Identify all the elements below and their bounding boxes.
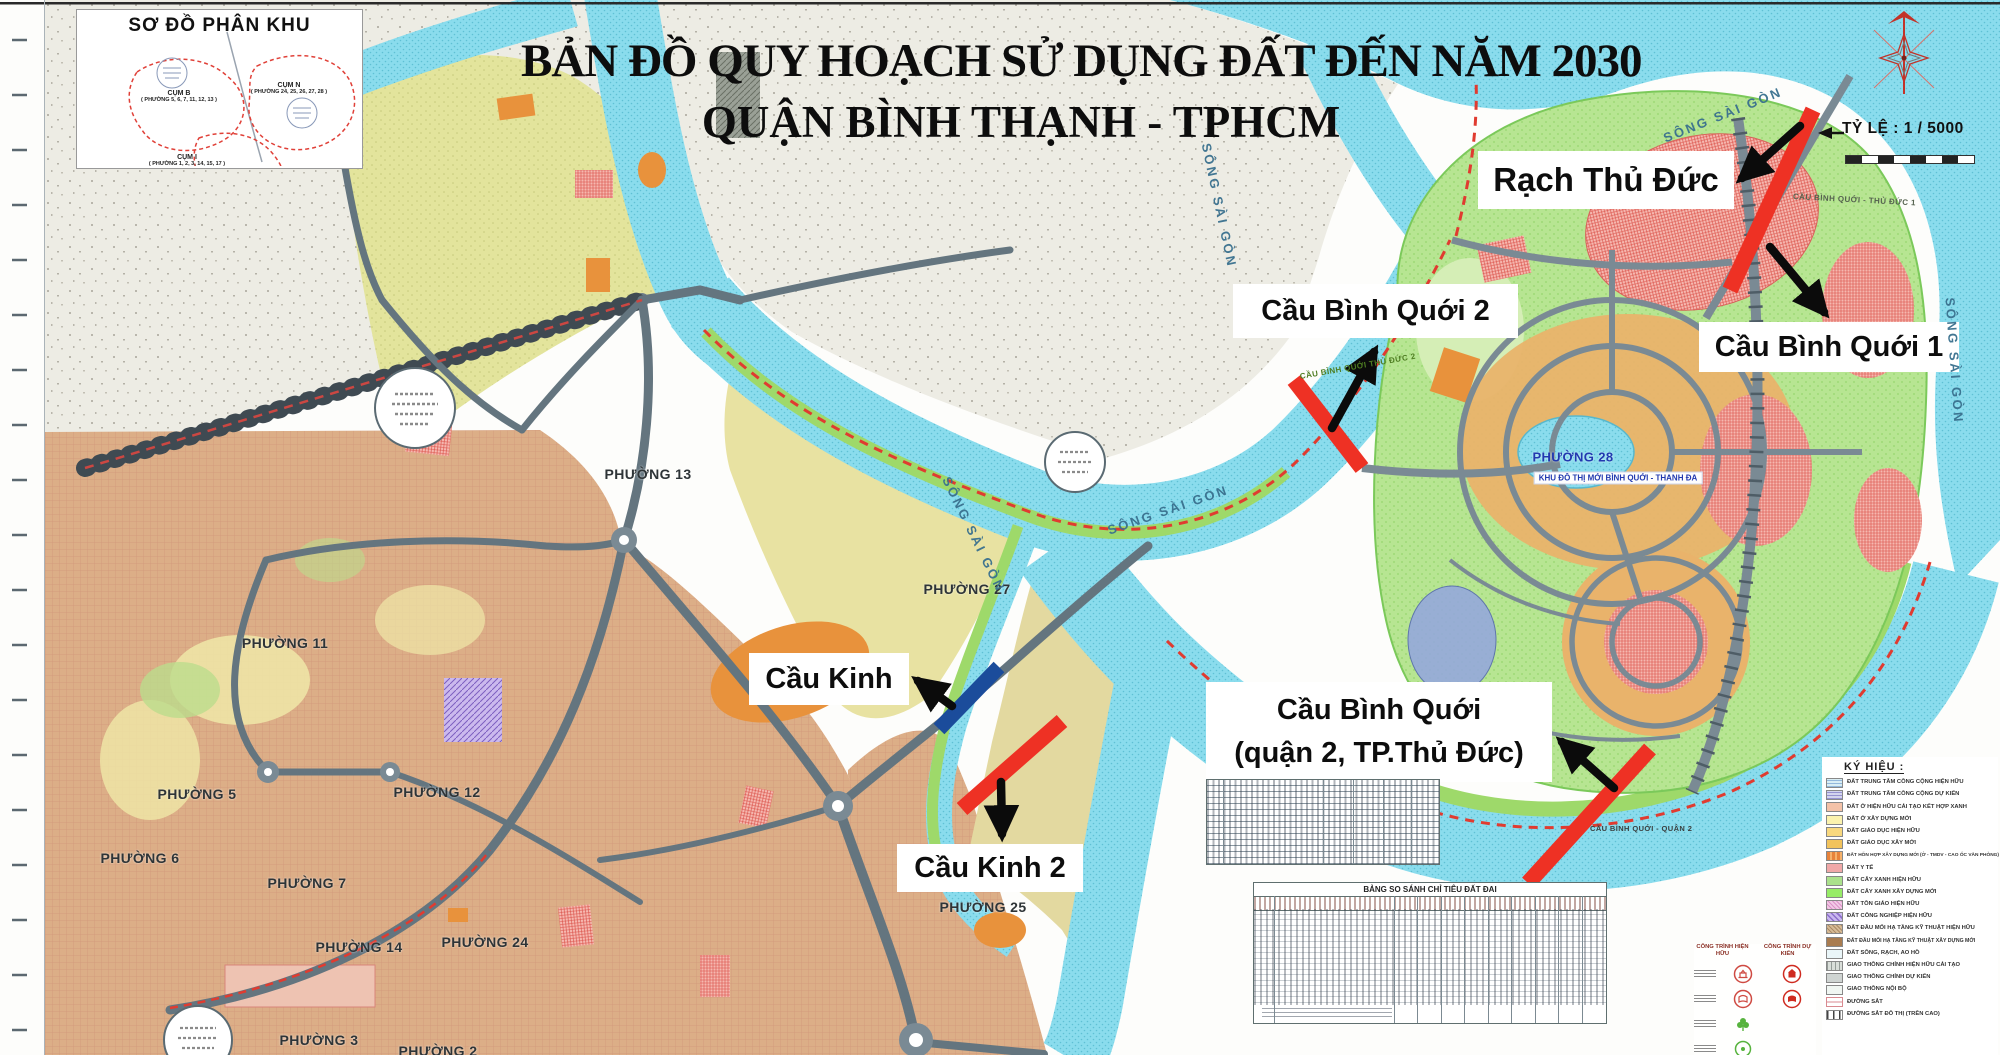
legend-swatch bbox=[1826, 949, 1843, 959]
legend-label: ĐƯỜNG SẮT ĐÔ THỊ (TRÊN CAO) bbox=[1847, 1012, 1940, 1018]
inset-zoning-diagram: SƠ ĐỒ PHÂN KHU CỤM B ( PHƯỜNG 5, 6, 7, 1… bbox=[76, 9, 363, 169]
callout-cau-binh-quoi-quan2: Cầu Bình Quới (quận 2, TP.Thủ Đức) bbox=[1206, 682, 1552, 782]
legend-swatch bbox=[1826, 924, 1843, 934]
inset-cluster-i: CỤM I ( PHƯỜNG 1, 2, 3, 14, 15, 17 ) bbox=[149, 154, 225, 167]
ward-label-phuong-13: PHƯỜNG 13 bbox=[604, 466, 691, 482]
legend-structure-row-label bbox=[1694, 1045, 1716, 1054]
existing-park-icon bbox=[1733, 1014, 1753, 1034]
legend-structure-row-label bbox=[1694, 995, 1716, 1004]
grid-ticks bbox=[12, 40, 27, 1030]
callout-cau-kinh: Cầu Kinh bbox=[749, 653, 909, 705]
legend-swatch bbox=[1826, 937, 1843, 947]
legend-swatch bbox=[1826, 790, 1843, 800]
comparison-table-notes bbox=[1262, 1008, 1392, 1020]
legend-label: ĐẤT CÂY XANH HIỆN HỮU bbox=[1847, 878, 1921, 884]
legend-structures: CÔNG TRÌNH HIỆN HỮU CÔNG TRÌNH DỰ KIẾN bbox=[1694, 944, 1816, 1055]
inset-cluster-n: CỤM N ( PHƯỜNG 24, 25, 26, 27, 28 ) bbox=[251, 82, 327, 95]
legend-structure-row-label bbox=[1694, 970, 1716, 979]
map-title-line1: BẢN ĐỒ QUY HOẠCH SỬ DỤNG ĐẤT ĐẾN NĂM 203… bbox=[521, 34, 1521, 88]
map-title: BẢN ĐỒ QUY HOẠCH SỬ DỤNG ĐẤT ĐẾN NĂM 203… bbox=[521, 34, 1521, 148]
legend-label: ĐẤT GIÁO DỤC XÂY MỚI bbox=[1847, 841, 1916, 847]
label-khu-do-thi-binh-quoi-thanh-da: KHU ĐÔ THỊ MỚI BÌNH QUỚI - THANH ĐA bbox=[1534, 472, 1703, 485]
legend-swatch bbox=[1826, 985, 1843, 995]
ward-label-phuong-14: PHƯỜNG 14 bbox=[315, 939, 402, 955]
ward-label-phuong-5: PHƯỜNG 5 bbox=[158, 786, 237, 802]
legend-label: ĐẤT ĐẦU MỐI HẠ TẦNG KỸ THUẬT XÂY DỰNG MỚ… bbox=[1847, 939, 1975, 944]
inset-cluster-b: CỤM B ( PHƯỜNG 5, 6, 7, 11, 12, 13 ) bbox=[141, 90, 217, 103]
legend-swatch bbox=[1826, 839, 1843, 849]
ward-label-phuong-28: PHƯỜNG 28 bbox=[1532, 450, 1613, 465]
comparison-table-body bbox=[1254, 909, 1606, 1005]
legend-swatch bbox=[1826, 912, 1843, 922]
ward-label-phuong-11: PHƯỜNG 11 bbox=[242, 635, 328, 651]
legend-swatch bbox=[1826, 815, 1843, 825]
scale-bar bbox=[1845, 155, 1975, 164]
legend-swatch bbox=[1826, 961, 1843, 971]
legend-swatch bbox=[1826, 900, 1843, 910]
legend-structures-planned: CÔNG TRÌNH DỰ KIẾN bbox=[1759, 944, 1816, 958]
legend-label: ĐẤT GIÁO DỤC HIỆN HỮU bbox=[1847, 829, 1920, 835]
legend-label: ĐẤT Y TẾ bbox=[1847, 866, 1873, 872]
callout-cau-binh-quoi-1: Cầu Bình Quới 1 bbox=[1699, 322, 1959, 372]
legend-label: ĐƯỜNG SẮT bbox=[1847, 1000, 1883, 1006]
callout-cbq-q2-line1: Cầu Bình Quới bbox=[1277, 689, 1481, 733]
legend-swatch bbox=[1826, 851, 1843, 861]
legend-structures-existing: CÔNG TRÌNH HIỆN HỮU bbox=[1694, 944, 1751, 958]
legend-label: ĐẤT HỖN HỢP XÂY DỰNG MỚI (Ở - TMDV - CAO… bbox=[1847, 854, 1999, 859]
legend-label: ĐẤT Ở XÂY DỰNG MỚI bbox=[1847, 817, 1911, 823]
legend-title: KÝ HIỆU : bbox=[1844, 761, 1904, 774]
legend-label: ĐẤT TÔN GIÁO HIỆN HỮU bbox=[1847, 902, 1919, 908]
legend-swatch bbox=[1826, 973, 1843, 983]
inset-title: SƠ ĐỒ PHÂN KHU bbox=[77, 15, 362, 37]
legend-swatch bbox=[1826, 778, 1843, 788]
callout-cau-kinh-2: Cầu Kinh 2 bbox=[897, 844, 1083, 892]
legend-label: ĐẤT CÂY XANH XÂY DỰNG MỚI bbox=[1847, 890, 1936, 896]
legend-panel: KÝ HIỆU : ĐẤT TRUNG TÂM CÔNG CỘNG HIỆN H… bbox=[1822, 757, 1998, 1055]
callout-cau-binh-quoi-2: Cầu Bình Quới 2 bbox=[1233, 284, 1518, 338]
map-title-line2: QUẬN BÌNH THẠNH - TPHCM bbox=[521, 96, 1521, 148]
map-text-cau-binh-quoi-quan-2: CẦU BÌNH QUỚI - QUẬN 2 bbox=[1590, 824, 1692, 833]
callout-cbq-q2-line2: (quận 2, TP.Thủ Đức) bbox=[1234, 732, 1524, 776]
legend-swatch bbox=[1826, 997, 1843, 1007]
legend-swatch bbox=[1826, 802, 1843, 812]
existing-civic-building-icon bbox=[1733, 964, 1753, 984]
legend-label: ĐẤT TRUNG TÂM CÔNG CỘNG HIỆN HỮU bbox=[1847, 780, 1964, 786]
legend-label: GIAO THÔNG CHÍNH HIỆN HỮU CẢI TẠO bbox=[1847, 963, 1960, 969]
legend-label: ĐẤT TRUNG TÂM CÔNG CỘNG DỰ KIẾN bbox=[1847, 792, 1959, 798]
legend-label: GIAO THÔNG CHÍNH DỰ KIẾN bbox=[1847, 975, 1930, 981]
planning-map-screenshot: BẢN ĐỒ QUY HOẠCH SỬ DỤNG ĐẤT ĐẾN NĂM 203… bbox=[0, 0, 2000, 1055]
existing-sports-icon bbox=[1733, 1039, 1753, 1055]
ward-label-phuong-2: PHƯỜNG 2 bbox=[399, 1043, 478, 1055]
legend-swatch bbox=[1826, 1010, 1843, 1020]
legend-label: ĐẤT Ở HIỆN HỮU CẢI TẠO KẾT HỢP XANH bbox=[1847, 805, 1967, 811]
legend-label: ĐẤT ĐẦU MỐI HẠ TẦNG KỸ THUẬT HIỆN HỮU bbox=[1847, 926, 1975, 932]
legend-swatch bbox=[1826, 876, 1843, 886]
callout-rach-thu-duc: Rạch Thủ Đức bbox=[1478, 151, 1734, 209]
comparison-table-title: BẢNG SO SÁNH CHỈ TIÊU ĐẤT ĐAI bbox=[1254, 885, 1606, 894]
legend-label: GIAO THÔNG NỘI BỘ bbox=[1847, 987, 1907, 993]
planned-civic-building-icon bbox=[1782, 964, 1802, 984]
ward-label-phuong-7: PHƯỜNG 7 bbox=[268, 875, 347, 891]
ward-label-phuong-24: PHƯỜNG 24 bbox=[441, 934, 528, 950]
ward-label-phuong-3: PHƯỜNG 3 bbox=[280, 1032, 359, 1048]
legend-label: ĐẤT CÔNG NGHIỆP HIỆN HỮU bbox=[1847, 914, 1932, 920]
legend-label: ĐẤT SÔNG, RẠCH, AO HỒ bbox=[1847, 951, 1920, 957]
legend-swatch bbox=[1826, 827, 1843, 837]
ward-label-phuong-6: PHƯỜNG 6 bbox=[101, 850, 180, 866]
land-statistics-table bbox=[1206, 779, 1440, 865]
planned-culture-icon bbox=[1782, 989, 1802, 1009]
land-comparison-table: BẢNG SO SÁNH CHỈ TIÊU ĐẤT ĐAI bbox=[1253, 882, 1607, 1024]
scale-label: TỶ LỆ : 1 / 5000 bbox=[1842, 120, 1964, 138]
ward-label-phuong-25: PHƯỜNG 25 bbox=[939, 899, 1026, 915]
legend-structure-row-label bbox=[1694, 1020, 1716, 1029]
legend-swatch bbox=[1826, 888, 1843, 898]
existing-culture-icon bbox=[1733, 989, 1753, 1009]
legend-swatch bbox=[1826, 863, 1843, 873]
ward-label-phuong-12: PHƯỜNG 12 bbox=[393, 784, 480, 800]
